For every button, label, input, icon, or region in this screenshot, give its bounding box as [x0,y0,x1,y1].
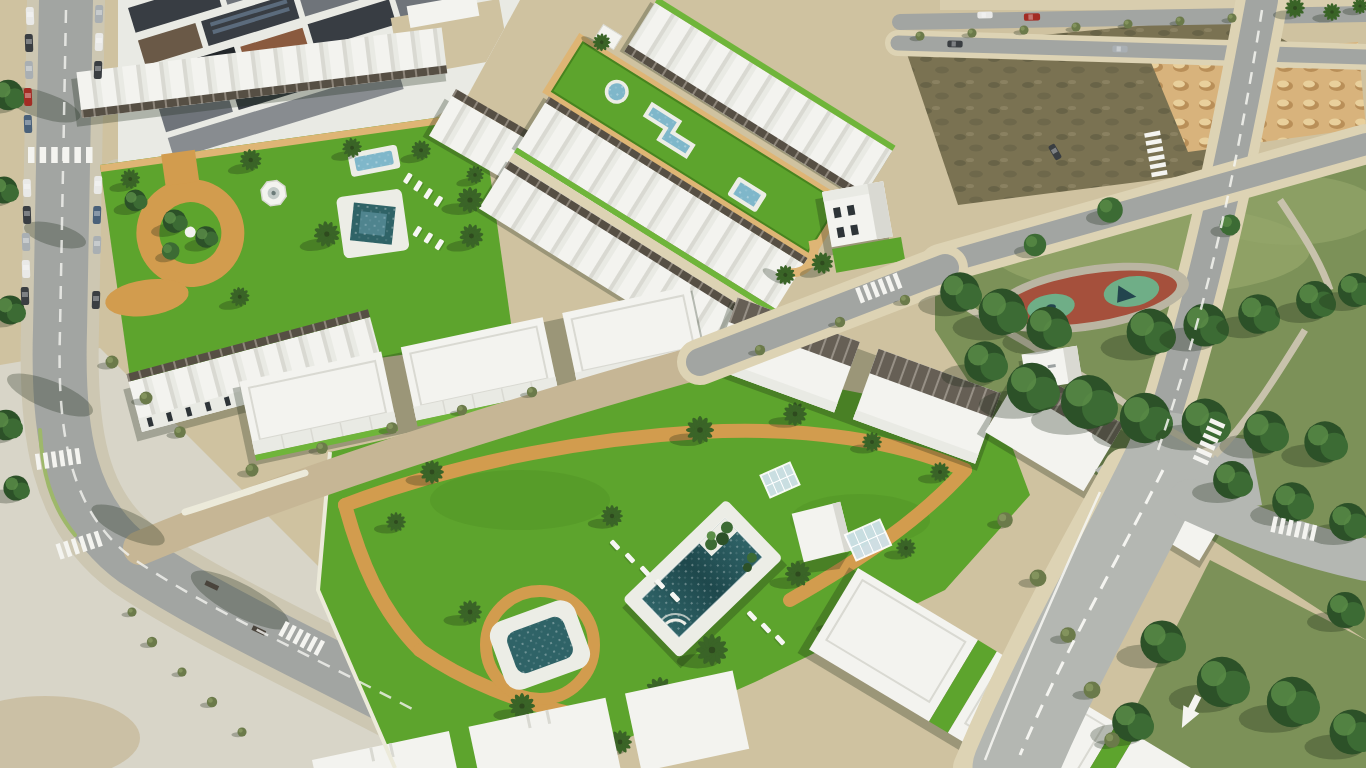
car [1024,13,1040,21]
car [24,115,33,133]
car [25,61,34,79]
lawn-shade [430,470,610,530]
car [93,236,102,254]
car [26,7,35,25]
car [95,33,104,51]
car [94,176,103,194]
car [977,11,993,18]
car [94,61,103,79]
car [23,179,32,197]
car [93,206,102,224]
render-canvas [0,0,1366,768]
car [24,88,33,106]
car [947,40,963,47]
complex-1-pool [336,188,410,259]
car [22,233,31,251]
car [1112,45,1128,52]
car [92,291,101,309]
path-spur [161,150,199,186]
car [22,260,31,278]
aerial-development-render [0,0,1366,768]
car [21,287,30,305]
car [23,206,32,224]
car [25,34,34,52]
car [95,5,104,23]
